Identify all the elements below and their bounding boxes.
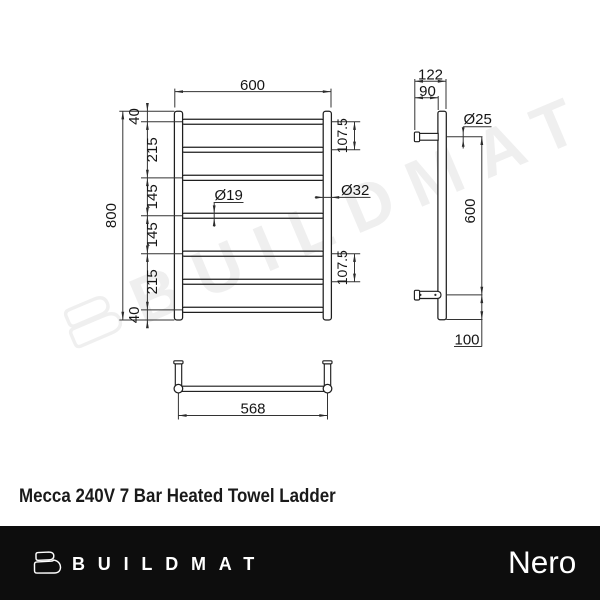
svg-text:BUILDMAT: BUILDMAT (119, 76, 600, 338)
svg-text:107.5: 107.5 (334, 118, 350, 153)
svg-text:107.5: 107.5 (334, 250, 350, 285)
svg-text:40: 40 (126, 108, 143, 125)
svg-text:122: 122 (418, 67, 443, 84)
svg-text:800: 800 (103, 203, 120, 228)
svg-text:145: 145 (144, 222, 161, 247)
svg-text:145: 145 (144, 184, 161, 209)
svg-text:Ø32: Ø32 (341, 182, 369, 199)
svg-text:568: 568 (240, 401, 265, 418)
svg-text:100: 100 (454, 332, 479, 349)
svg-text:215: 215 (144, 269, 161, 294)
svg-text:90: 90 (419, 83, 436, 100)
svg-text:600: 600 (462, 198, 479, 223)
svg-text:40: 40 (126, 307, 143, 324)
svg-text:215: 215 (144, 137, 161, 162)
svg-text:Ø19: Ø19 (215, 187, 243, 204)
svg-text:600: 600 (240, 77, 265, 94)
svg-text:Ø25: Ø25 (464, 111, 492, 128)
